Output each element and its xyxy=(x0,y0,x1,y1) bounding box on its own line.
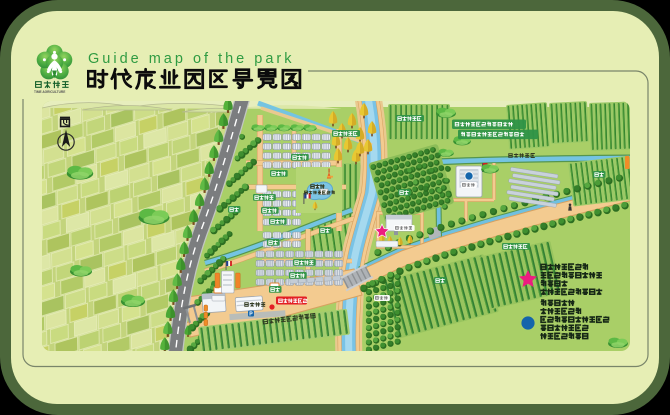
svg-text:P: P xyxy=(249,312,253,318)
